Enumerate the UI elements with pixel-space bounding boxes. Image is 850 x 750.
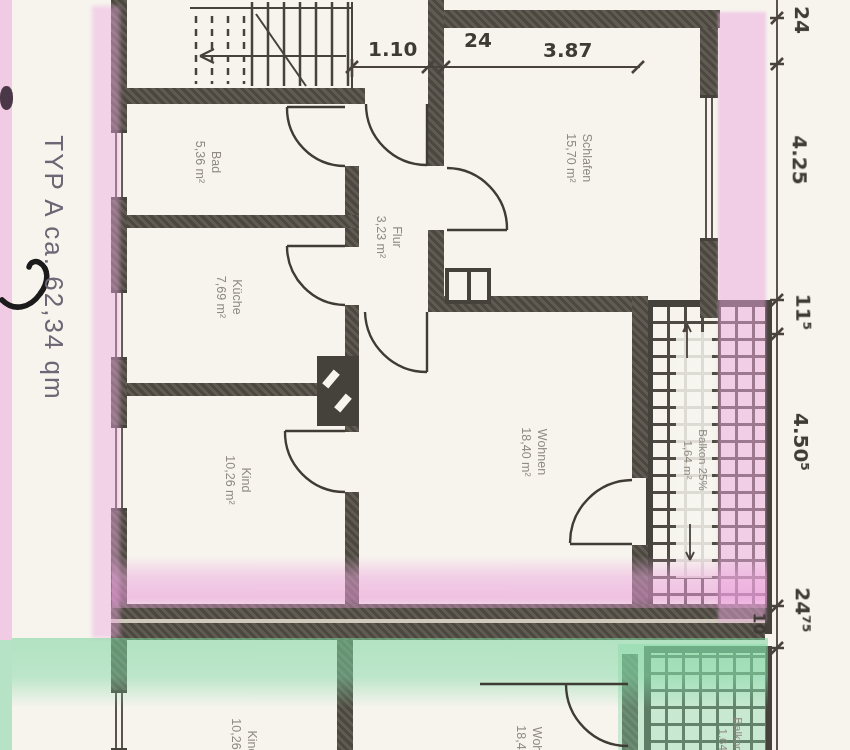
room-label-balkon: Balkon 25% 1,64 m² (680, 385, 710, 535)
staircase (190, 2, 352, 88)
dim-right-4: 4.50⁵ (789, 413, 813, 471)
room-label-flur: Flur 3,23 m² (371, 192, 405, 282)
door-kueche (287, 246, 345, 305)
room-area: 15,70 m² (563, 113, 579, 203)
stair-edges (190, 2, 352, 88)
dim-right-5: 24⁷⁵ (791, 587, 815, 632)
dim-right-2: 4.25 (788, 135, 812, 184)
room-area: 10,26 m² (222, 435, 238, 525)
floorplan-scan: TYP A ca. 62,34 qm Bad 5,36 m² Küche 7,6… (0, 0, 850, 750)
stair-direction-arrow (200, 49, 346, 63)
room-name: Balkon 25% (695, 385, 710, 535)
room-label-lower-wohnen: Wohnen 18,40 m² (511, 705, 545, 750)
room-name: Kind (238, 435, 254, 525)
stair-steps-solid (252, 2, 348, 86)
door-wohnen (365, 312, 427, 372)
room-name: Schlafen (579, 113, 595, 203)
door-lower-balkon (480, 684, 628, 746)
room-label-schlafen: Schlafen 15,70 m² (561, 113, 595, 203)
room-area: 10,26 m² (228, 698, 244, 750)
door-entry (366, 104, 427, 166)
plan-title: TYP A ca. 62,34 qm (35, 98, 69, 438)
door-schlafen (447, 168, 507, 230)
room-name: Wohnen (529, 705, 545, 750)
room-area: 7,69 m² (213, 252, 229, 342)
room-name: Wohnen (534, 407, 550, 497)
stair-break-line (256, 14, 306, 86)
room-name: Balkon 25% (730, 673, 745, 750)
door-bad (287, 107, 345, 166)
room-label-wohnen: Wohnen 18,40 m² (516, 407, 550, 497)
room-area: 1,64 m² (715, 673, 730, 750)
room-area: 1,64 m² (680, 385, 695, 535)
room-label-kueche: Küche 7,69 m² (211, 252, 245, 342)
dim-right-1: 24 (790, 6, 814, 34)
dim-right-6: 10 (750, 612, 769, 634)
dim-ticks-top (346, 59, 644, 77)
room-name: Bad (208, 117, 224, 207)
room-area: 18,40 m² (518, 407, 534, 497)
room-area: 5,36 m² (192, 117, 208, 207)
room-label-kind: Kind 10,26 m² (220, 435, 254, 525)
room-label-lower-balkon: Balkon 25% 1,64 m² (715, 673, 745, 750)
room-label-bad: Bad 5,36 m² (190, 117, 224, 207)
room-name: Küche (229, 252, 245, 342)
dim-top-1: 1.10 (368, 37, 417, 61)
dim-top-3: 3.87 (543, 38, 592, 62)
stair-steps-dashed (196, 16, 244, 84)
dim-top-2: 24 (464, 28, 492, 52)
room-area: 3,23 m² (373, 192, 389, 282)
linework-layer (0, 0, 850, 750)
dim-right-3: 11⁵ (791, 294, 815, 331)
door-balkon (570, 480, 632, 544)
room-area: 18,40 m² (513, 705, 529, 750)
door-kind (285, 431, 345, 492)
room-name: Flur (389, 192, 405, 282)
room-label-lower-kind: Kind 10,26 m² (226, 698, 260, 750)
room-name: Kind (244, 698, 260, 750)
